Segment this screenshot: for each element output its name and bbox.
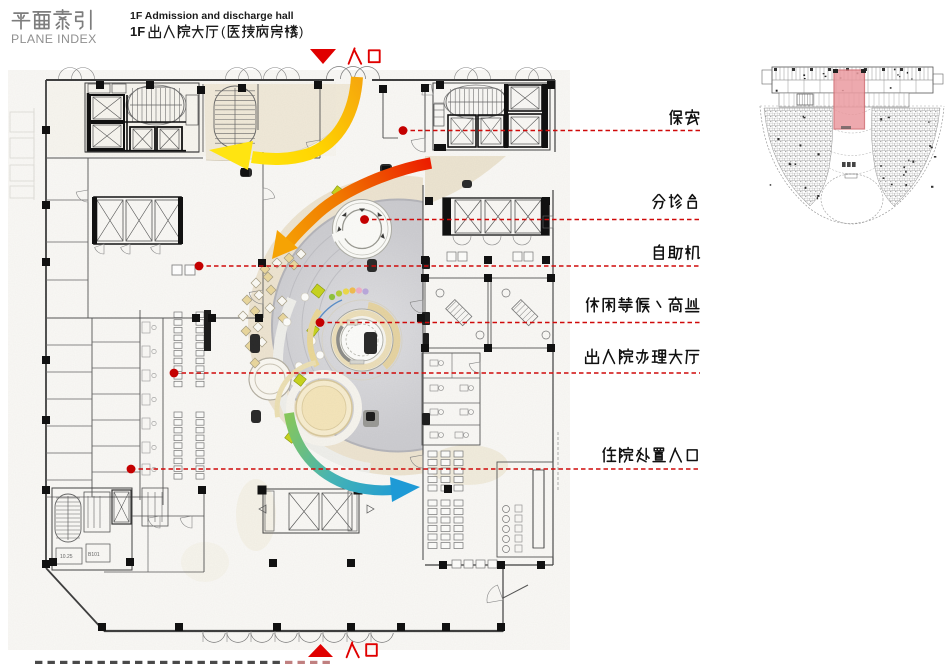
svg-text:1F Admission and discharge hal: 1F Admission and discharge hall: [130, 10, 294, 22]
svg-text:1F: 1F: [130, 24, 145, 39]
svg-text:(: (: [221, 24, 226, 39]
svg-text:): ): [299, 24, 303, 39]
svg-text:PLANE INDEX: PLANE INDEX: [11, 32, 97, 46]
